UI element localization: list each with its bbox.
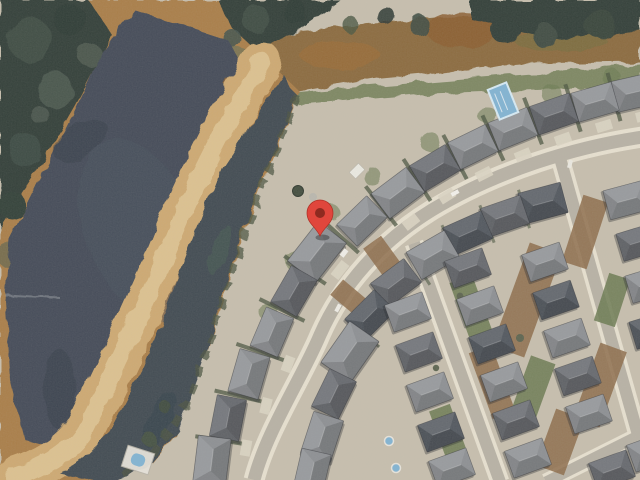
pin-shadow: [316, 235, 330, 241]
map-viewport[interactable]: [0, 0, 640, 480]
pin-dot: [315, 208, 325, 218]
satellite-map[interactable]: [0, 0, 640, 480]
